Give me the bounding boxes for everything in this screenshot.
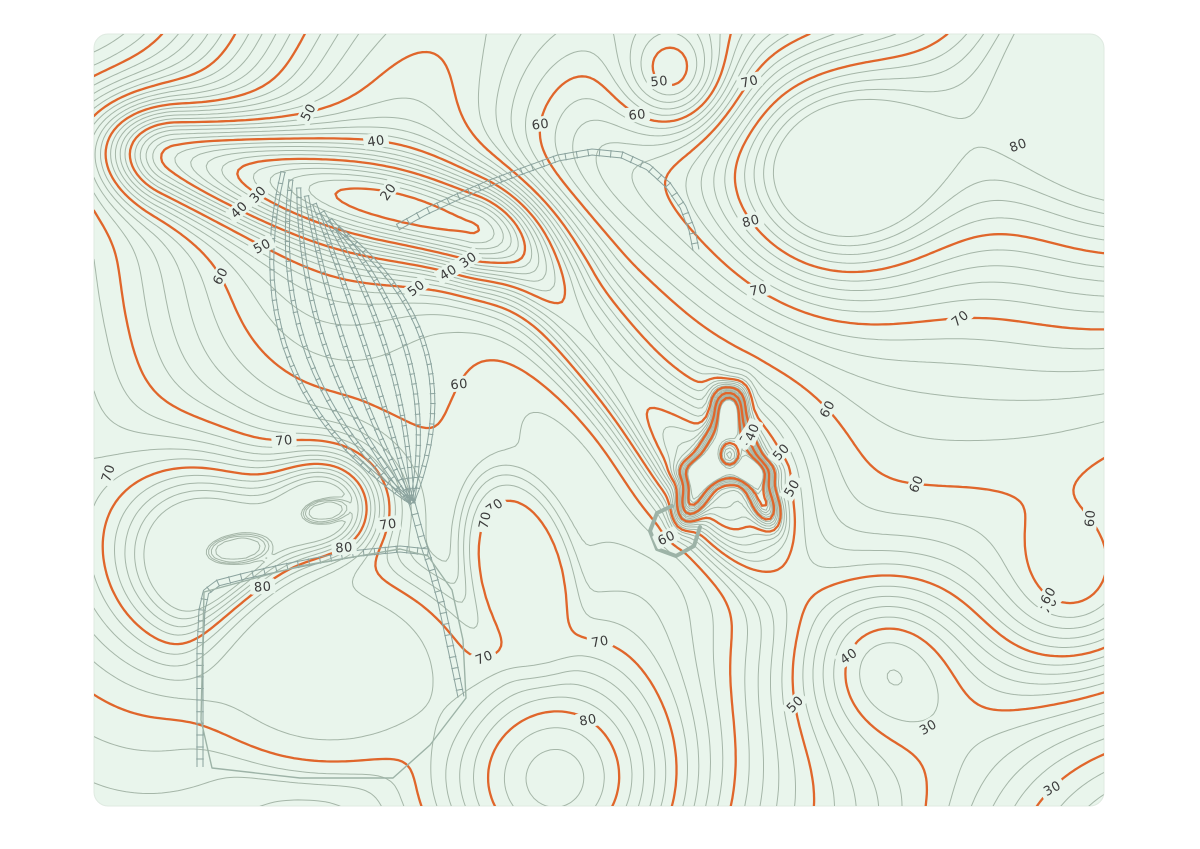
elevation-label-text: 80 [335, 540, 354, 556]
elevation-label-text: 40 [366, 133, 385, 150]
contour-label: 70 [271, 432, 297, 450]
contour-label: 70 [375, 515, 402, 534]
contour-label: 60 [1081, 505, 1099, 531]
elevation-label-text: 70 [590, 633, 610, 651]
contour-label: 80 [331, 539, 357, 557]
elevation-label-text: 60 [531, 116, 550, 133]
elevation-label-text: 70 [378, 516, 397, 533]
contour-label: 60 [527, 115, 554, 134]
elevation-label-text: 60 [450, 377, 469, 394]
contour-label: 80 [250, 578, 276, 596]
elevation-label-text: 50 [650, 74, 669, 90]
contour-label: 60 [446, 375, 473, 394]
contour-map-svg: 5040304050602030405060506060708080707060… [0, 0, 1200, 849]
elevation-label-text: 80 [578, 712, 598, 730]
contour-label: 50 [646, 72, 672, 90]
contour-label: 40 [363, 132, 390, 151]
page: 5040304050602030405060506060708080707060… [0, 0, 1200, 849]
elevation-label-text: 60 [628, 107, 647, 124]
contour-label: 60 [624, 106, 651, 125]
elevation-label-text: 70 [749, 282, 769, 300]
elevation-label-text: 70 [275, 433, 294, 449]
elevation-label-text: 60 [1083, 509, 1099, 528]
elevation-label-text: 80 [254, 580, 273, 596]
